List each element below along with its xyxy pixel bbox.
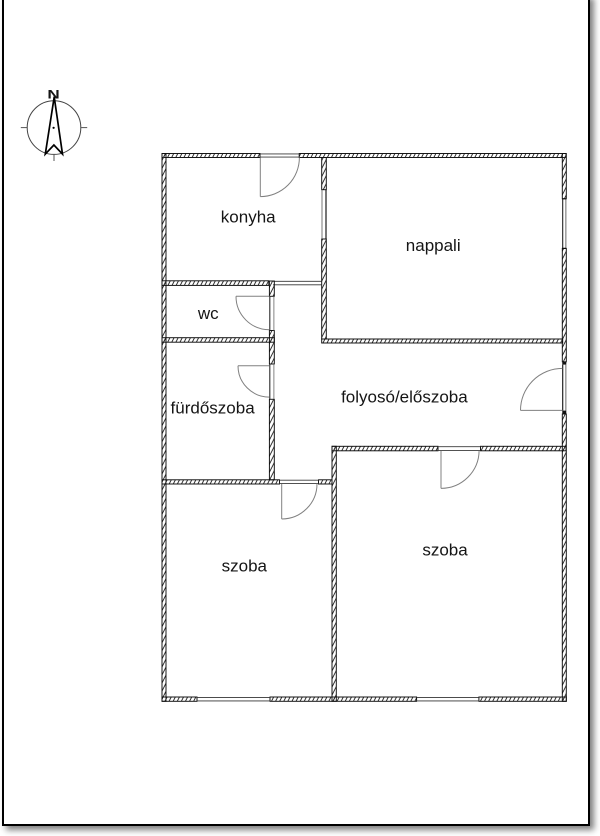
svg-text:konyha: konyha <box>221 207 276 226</box>
svg-text:szoba: szoba <box>422 541 468 560</box>
svg-text:fürdőszoba: fürdőszoba <box>171 398 256 417</box>
svg-text:folyosó/előszoba: folyosó/előszoba <box>341 388 468 407</box>
svg-text:N: N <box>47 89 59 102</box>
svg-text:szoba: szoba <box>222 556 268 575</box>
svg-text:wc: wc <box>197 304 219 323</box>
svg-text:nappali: nappali <box>406 236 461 255</box>
